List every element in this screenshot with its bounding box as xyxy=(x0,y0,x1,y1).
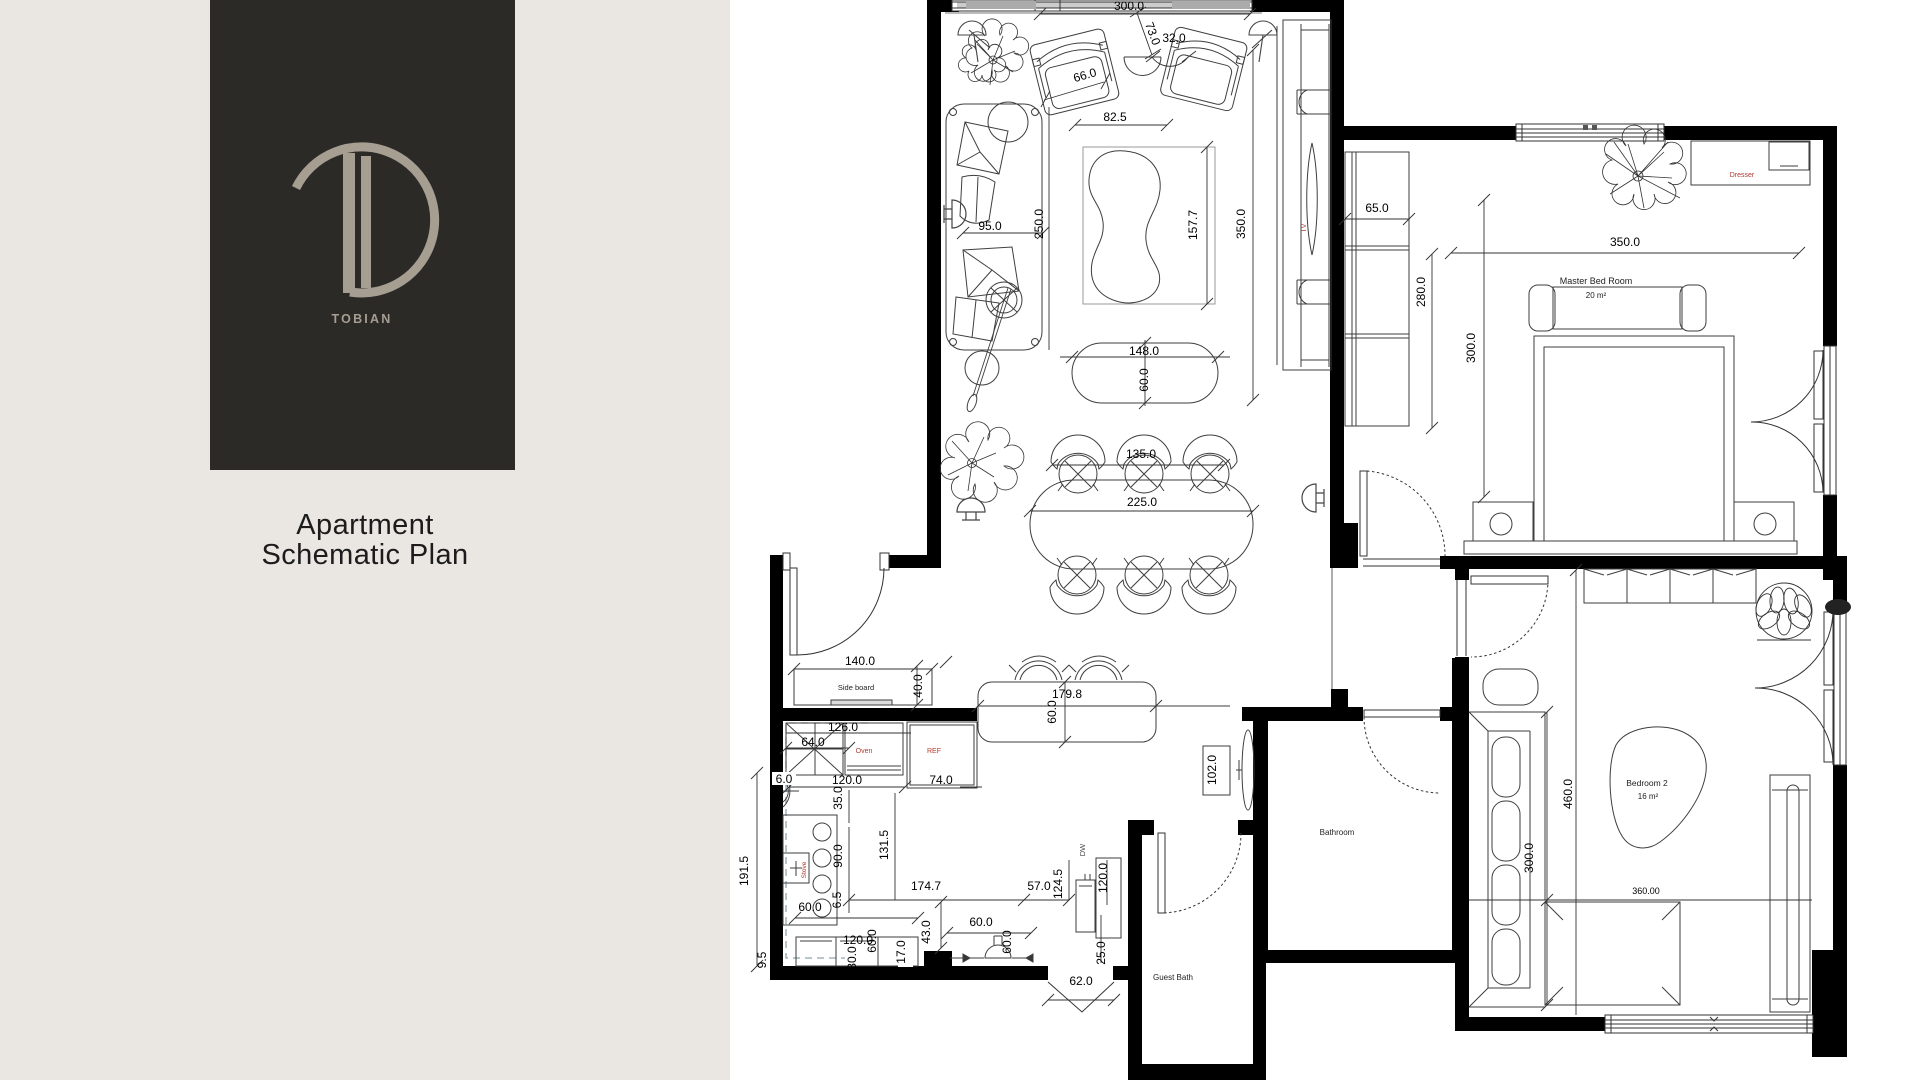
svg-text:9.5: 9.5 xyxy=(755,951,769,968)
svg-text:57.0: 57.0 xyxy=(1027,879,1051,893)
svg-text:43.0: 43.0 xyxy=(919,920,933,944)
svg-text:60.0: 60.0 xyxy=(969,915,993,929)
svg-text:60.0: 60.0 xyxy=(798,900,822,914)
svg-text:Oven: Oven xyxy=(856,748,873,755)
svg-text:126.0: 126.0 xyxy=(828,720,858,734)
svg-text:102.0: 102.0 xyxy=(1205,755,1219,785)
svg-text:62.0: 62.0 xyxy=(1069,974,1093,988)
svg-text:Bathroom: Bathroom xyxy=(1320,828,1355,837)
svg-text:82.5: 82.5 xyxy=(1103,110,1127,124)
svg-text:32.0: 32.0 xyxy=(1162,31,1186,45)
svg-text:60.0: 60.0 xyxy=(1045,700,1059,724)
svg-text:148.0: 148.0 xyxy=(1129,344,1159,358)
svg-text:35.0: 35.0 xyxy=(831,786,845,810)
svg-text:140.0: 140.0 xyxy=(845,654,875,668)
svg-text:174.7: 174.7 xyxy=(911,879,941,893)
svg-text:350.0: 350.0 xyxy=(1610,235,1640,249)
svg-text:300.0: 300.0 xyxy=(1464,333,1478,363)
svg-text:131.5: 131.5 xyxy=(877,830,891,860)
svg-text:66.0: 66.0 xyxy=(1072,65,1099,85)
svg-text:74.0: 74.0 xyxy=(929,773,953,787)
svg-text:16 m²: 16 m² xyxy=(1638,792,1659,801)
svg-text:135.0: 135.0 xyxy=(1126,447,1156,461)
svg-text:Dresser: Dresser xyxy=(1730,172,1755,179)
svg-text:6.0: 6.0 xyxy=(776,772,793,786)
svg-text:17.0: 17.0 xyxy=(894,940,908,964)
svg-text:30.0: 30.0 xyxy=(845,946,859,970)
svg-text:191.5: 191.5 xyxy=(737,856,751,886)
svg-text:Guest Bath: Guest Bath xyxy=(1153,973,1193,982)
svg-text:6.5: 6.5 xyxy=(830,891,844,908)
svg-text:25.0: 25.0 xyxy=(1094,941,1108,965)
svg-text:REF: REF xyxy=(927,748,941,755)
svg-text:90.0: 90.0 xyxy=(831,844,845,868)
svg-text:460.0: 460.0 xyxy=(1561,779,1575,809)
svg-text:Stove: Stove xyxy=(801,861,808,878)
svg-text:TV: TV xyxy=(1301,223,1308,232)
svg-text:64.0: 64.0 xyxy=(801,735,825,749)
svg-text:20 m²: 20 m² xyxy=(1586,291,1607,300)
svg-text:Master Bed Room: Master Bed Room xyxy=(1560,276,1633,286)
svg-text:124.5: 124.5 xyxy=(1051,869,1065,899)
svg-text:225.0: 225.0 xyxy=(1127,495,1157,509)
svg-text:95.0: 95.0 xyxy=(978,219,1002,233)
svg-text:300.0: 300.0 xyxy=(1114,0,1144,13)
svg-text:300.0: 300.0 xyxy=(1522,843,1536,873)
svg-text:60.0: 60.0 xyxy=(865,929,879,953)
svg-text:157.7: 157.7 xyxy=(1186,210,1200,240)
svg-text:60.0: 60.0 xyxy=(1000,930,1014,954)
svg-text:60.0: 60.0 xyxy=(1137,368,1151,392)
svg-text:DW: DW xyxy=(1078,843,1087,856)
svg-text:40.0: 40.0 xyxy=(911,674,925,698)
svg-text:120.0: 120.0 xyxy=(1096,863,1110,893)
svg-text:179.8: 179.8 xyxy=(1052,687,1082,701)
svg-text:65.0: 65.0 xyxy=(1365,201,1389,215)
svg-text:280.0: 280.0 xyxy=(1414,277,1428,307)
svg-text:250.0: 250.0 xyxy=(1032,209,1046,239)
svg-text:120.0: 120.0 xyxy=(832,773,862,787)
svg-text:Side board: Side board xyxy=(838,683,874,692)
svg-text:350.0: 350.0 xyxy=(1234,209,1248,239)
svg-text:73.0: 73.0 xyxy=(1142,20,1163,47)
svg-text:Bedroom 2: Bedroom 2 xyxy=(1626,778,1668,788)
svg-text:360.00: 360.00 xyxy=(1632,886,1660,896)
